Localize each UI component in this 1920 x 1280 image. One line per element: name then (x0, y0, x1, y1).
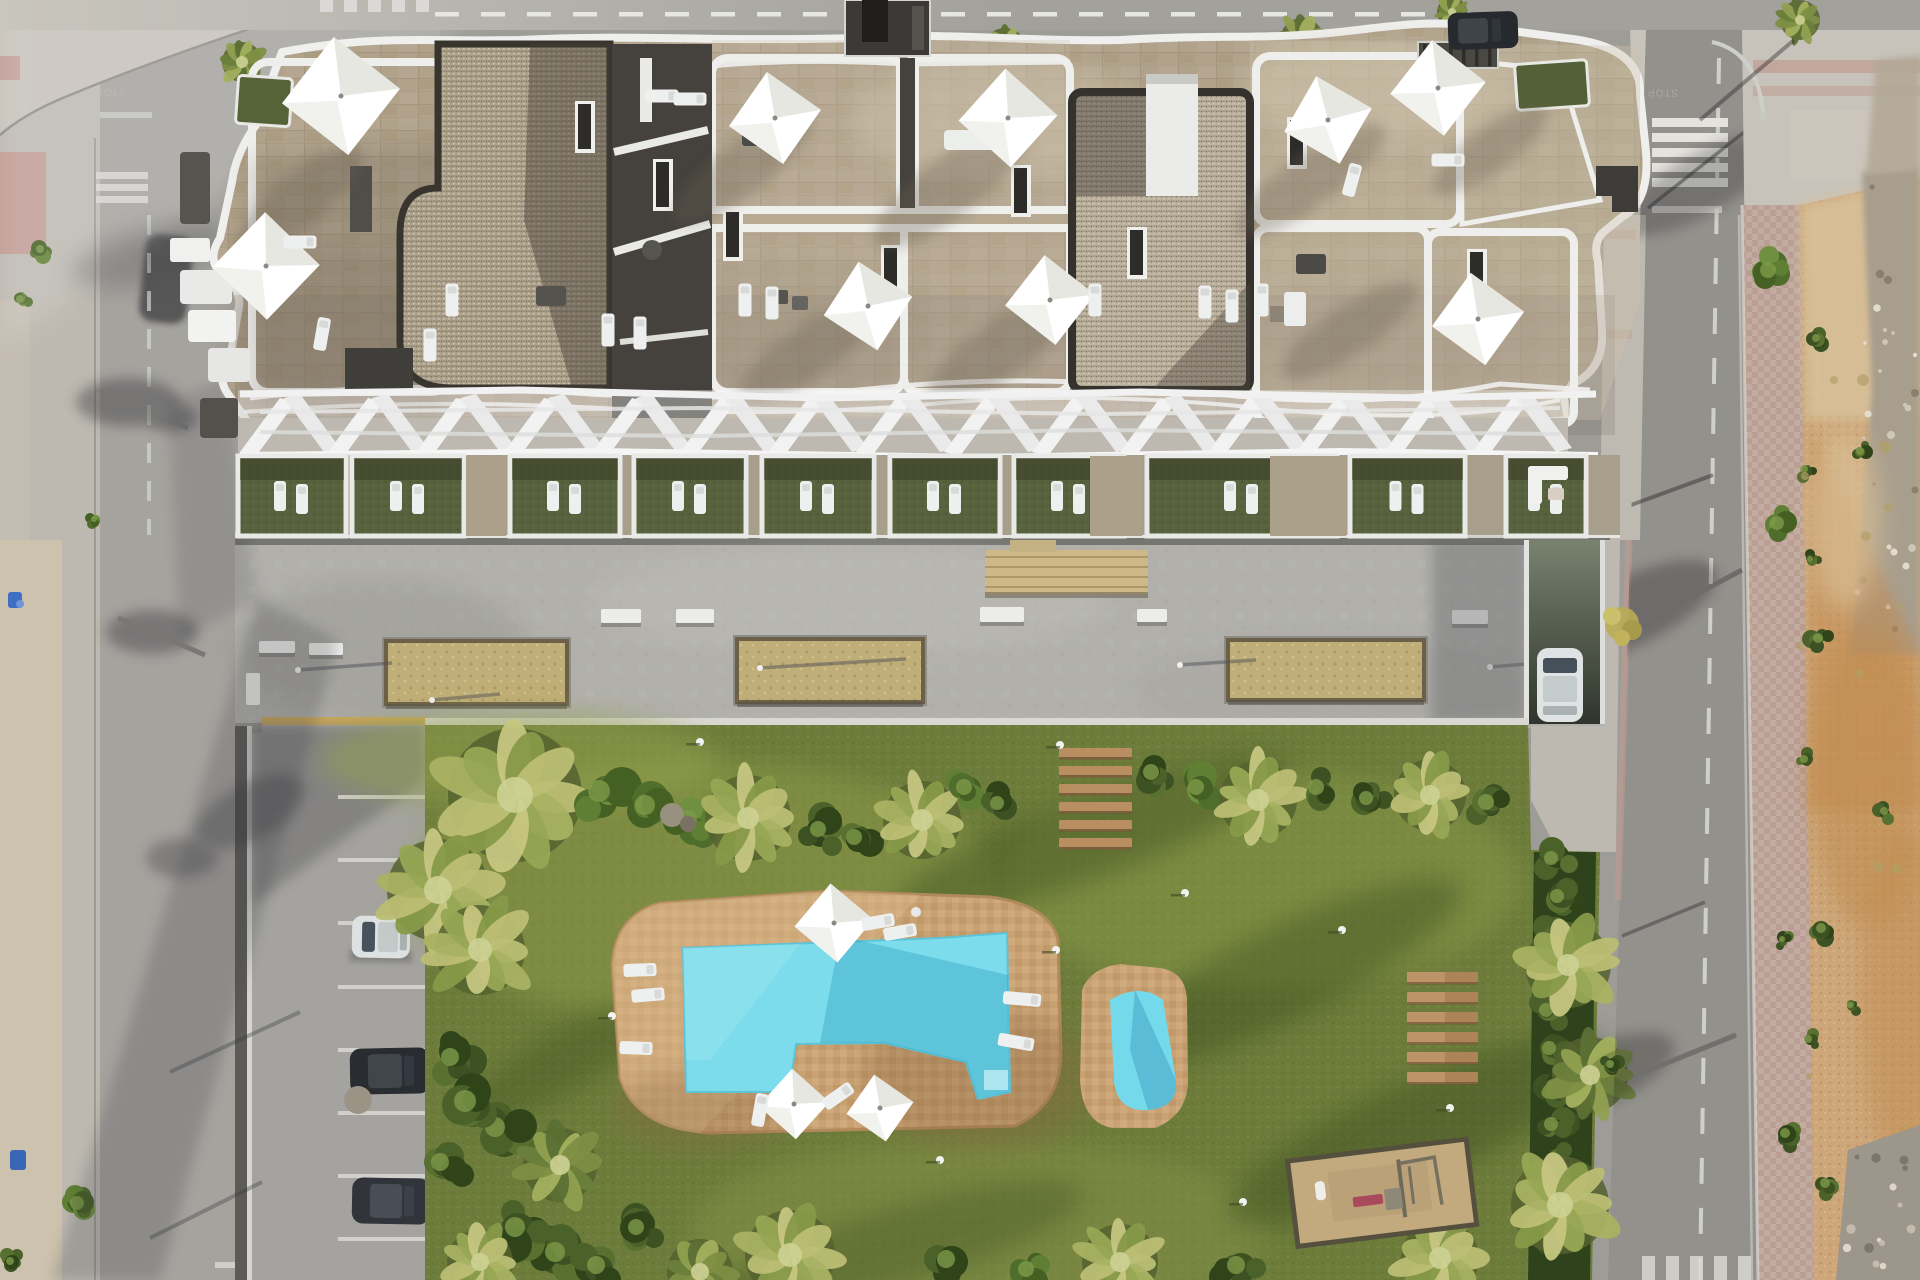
svg-text:STOP: STOP (1647, 86, 1678, 98)
